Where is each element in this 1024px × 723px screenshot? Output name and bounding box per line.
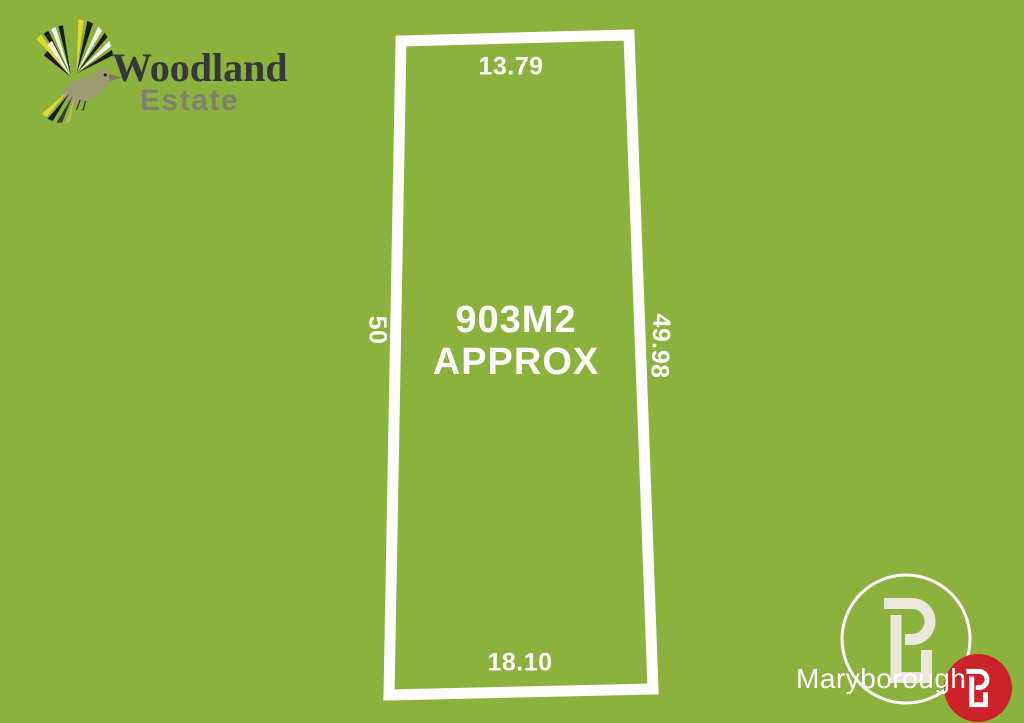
estate-logo: Woodland Estate xyxy=(0,0,340,140)
agency-mark: Maryborough xyxy=(790,555,1024,723)
estate-name-line1: Woodland xyxy=(112,48,288,88)
dimension-top: 13.79 xyxy=(478,53,543,82)
lot-area-line2: APPROX xyxy=(433,342,599,384)
agency-logo-graphic xyxy=(800,560,1024,723)
lot-area-text: 903M2 APPROX xyxy=(433,300,599,384)
dimension-right: 49.98 xyxy=(644,313,675,379)
estate-name-line2: Estate xyxy=(140,86,239,116)
agency-name: Maryborough xyxy=(796,663,966,695)
lot-plan-flyer: 13.79 50 49.98 18.10 903M2 APPROX xyxy=(0,0,1024,723)
dimension-bottom: 18.10 xyxy=(487,649,552,678)
bird-icon xyxy=(22,10,122,128)
dimension-left: 50 xyxy=(362,315,391,344)
lot-area-line1: 903M2 xyxy=(433,300,599,342)
